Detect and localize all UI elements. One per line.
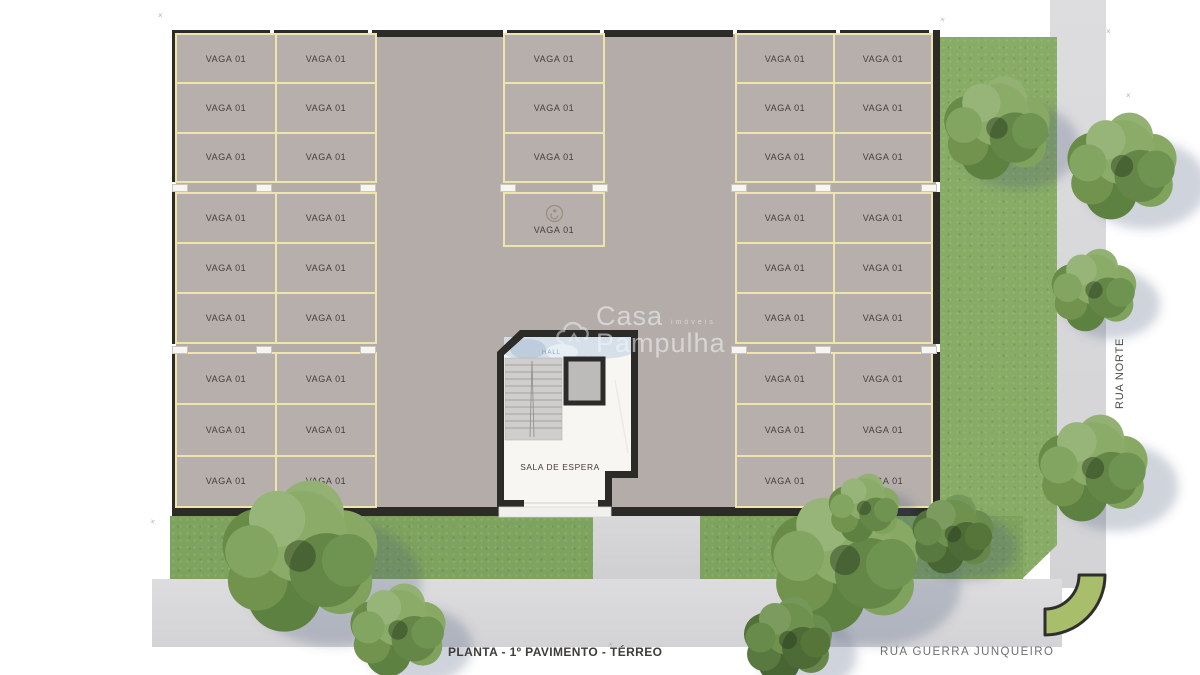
stall-label: VAGA 01 <box>863 213 904 223</box>
parking-stall: VAGA 01 <box>835 405 931 454</box>
wall-segment <box>933 30 940 182</box>
stall-label: VAGA 01 <box>206 313 247 323</box>
dimension-mark: × <box>1126 92 1131 100</box>
parking-block-right-bottom: VAGA 01VAGA 01VAGA 01VAGA 01VAGA 01VAGA … <box>735 352 933 508</box>
stall-label: VAGA 01 <box>206 374 247 384</box>
wall-segment <box>372 30 503 37</box>
driveway <box>593 516 700 579</box>
stall-label: VAGA 01 <box>534 54 575 64</box>
stall-label: VAGA 01 <box>206 54 247 64</box>
parking-stall: VAGA 01 <box>277 35 375 82</box>
parking-stall: VAGA 01 <box>737 244 833 292</box>
structural-column <box>592 184 608 192</box>
stall-label: VAGA 01 <box>534 152 575 162</box>
parking-block-left-bottom: VAGA 01VAGA 01VAGA 01VAGA 01VAGA 01VAGA … <box>175 352 377 508</box>
parking-block-left-top: VAGA 01VAGA 01VAGA 01VAGA 01VAGA 01VAGA … <box>175 33 377 183</box>
structural-column <box>921 184 937 192</box>
structural-column <box>815 184 831 192</box>
structural-column <box>256 184 272 192</box>
floor-plan-canvas: VAGA 01VAGA 01VAGA 01VAGA 01VAGA 01VAGA … <box>0 0 1200 675</box>
stall-label: VAGA 01 <box>306 103 347 113</box>
entrance-stoop <box>499 507 611 517</box>
stall-label: VAGA 01 <box>765 263 806 273</box>
structural-column <box>360 184 376 192</box>
structural-column <box>172 346 188 354</box>
dimension-mark: × <box>939 15 946 24</box>
stall-label: VAGA 01 <box>206 152 247 162</box>
parking-stall: VAGA 01 <box>737 354 833 403</box>
parking-stall: VAGA 01 <box>737 457 833 506</box>
parking-stall: VAGA 01 <box>737 405 833 454</box>
parking-stall: VAGA 01 <box>177 244 275 292</box>
stall-label: VAGA 01 <box>306 263 347 273</box>
grass-strip-right <box>940 37 1057 578</box>
structural-column <box>500 184 516 192</box>
stall-label: VAGA 01 <box>206 263 247 273</box>
structural-column <box>731 346 747 354</box>
stall-label: VAGA 01 <box>863 263 904 273</box>
stall-label: VAGA 01 <box>863 476 904 486</box>
structural-column <box>921 346 937 354</box>
stall-label: VAGA 01 <box>306 313 347 323</box>
parking-stall: VAGA 01 <box>835 457 931 506</box>
stall-label: VAGA 01 <box>765 54 806 64</box>
stall-label: VAGA 01 <box>306 152 347 162</box>
stall-label: VAGA 01 <box>534 103 575 113</box>
elevator-shaft <box>566 359 603 403</box>
parking-stall: VAGA 01 <box>177 294 275 342</box>
structural-column <box>360 346 376 354</box>
parking-stall: VAGA 01 <box>277 354 375 403</box>
sidewalk-right <box>1050 0 1106 588</box>
stall-label: VAGA 01 <box>863 374 904 384</box>
parking-stall: VAGA 01 <box>737 294 833 342</box>
parking-stall: VAGA 01 <box>177 35 275 82</box>
stall-label: VAGA 01 <box>765 152 806 162</box>
stall-label: VAGA 01 <box>306 213 347 223</box>
stall-label: VAGA 01 <box>863 152 904 162</box>
parking-block-left-middle: VAGA 01VAGA 01VAGA 01VAGA 01VAGA 01VAGA … <box>175 192 377 344</box>
stall-label: VAGA 01 <box>306 476 347 486</box>
street-label-bottom: RUA GUERRA JUNQUEIRO <box>880 646 1054 658</box>
parking-stall: VAGA 01 <box>277 244 375 292</box>
parking-stall: VAGA 01 <box>835 354 931 403</box>
stall-label: VAGA 01 <box>306 374 347 384</box>
parking-stall: VAGA 01 <box>177 194 275 242</box>
accessible-parking-icon <box>545 204 564 223</box>
parking-stall: VAGA 01 <box>177 405 275 454</box>
parking-stall: VAGA 01 <box>737 194 833 242</box>
parking-block-right-middle: VAGA 01VAGA 01VAGA 01VAGA 01VAGA 01VAGA … <box>735 192 933 344</box>
parking-block-center-top: VAGA 01VAGA 01VAGA 01 <box>503 33 605 183</box>
structural-column <box>731 184 747 192</box>
dimension-mark: × <box>1106 28 1111 36</box>
wall-segment <box>604 30 733 37</box>
stair-core: HALL SALA DE ESPERA <box>490 325 642 519</box>
stall-label: VAGA 01 <box>863 425 904 435</box>
parking-stall: VAGA 01 <box>177 354 275 403</box>
plan-title: PLANTA - 1º PAVIMENTO - TÉRREO <box>448 645 662 659</box>
structural-column <box>815 346 831 354</box>
stall-label: VAGA 01 <box>863 103 904 113</box>
wall-segment <box>172 507 499 516</box>
parking-stall: VAGA 01 <box>835 35 931 82</box>
stall-label: VAGA 01 <box>765 374 806 384</box>
parking-stall: VAGA 01 <box>277 294 375 342</box>
waiting-room-label: SALA DE ESPERA <box>520 462 600 472</box>
wall-segment <box>611 507 940 516</box>
wall-segment <box>933 192 940 344</box>
parking-stall: VAGA 01 <box>277 134 375 181</box>
stall-label: VAGA 01 <box>206 213 247 223</box>
dimension-mark: × <box>158 12 163 20</box>
stall-label: VAGA 01 <box>206 103 247 113</box>
parking-stall-accessible: VAGA 01 <box>505 194 603 245</box>
dimension-mark: × <box>149 517 156 526</box>
stall-label: VAGA 01 <box>863 313 904 323</box>
parking-block-right-top: VAGA 01VAGA 01VAGA 01VAGA 01VAGA 01VAGA … <box>735 33 933 183</box>
parking-stall: VAGA 01 <box>177 457 275 506</box>
stall-label: VAGA 01 <box>765 476 806 486</box>
wall-segment <box>933 352 940 516</box>
parking-stall: VAGA 01 <box>277 84 375 131</box>
parking-stall: VAGA 01 <box>505 84 603 131</box>
parking-stall: VAGA 01 <box>835 84 931 131</box>
parking-stall: VAGA 01 <box>835 194 931 242</box>
parking-stall: VAGA 01 <box>177 134 275 181</box>
parking-stall: VAGA 01 <box>277 194 375 242</box>
parking-stall: VAGA 01 <box>505 134 603 181</box>
parking-stall: VAGA 01 <box>737 35 833 82</box>
parking-stall: VAGA 01 <box>277 405 375 454</box>
hall-label: HALL <box>542 350 561 356</box>
parking-stall: VAGA 01 <box>505 35 603 82</box>
parking-stall: VAGA 01 <box>835 244 931 292</box>
structural-column <box>172 184 188 192</box>
stall-label: VAGA 01 <box>306 425 347 435</box>
parking-stall: VAGA 01 <box>277 457 375 506</box>
parking-stall: VAGA 01 <box>835 294 931 342</box>
parking-block-center-accessible: VAGA 01 <box>503 192 605 247</box>
parking-stall: VAGA 01 <box>737 134 833 181</box>
stall-label: VAGA 01 <box>765 425 806 435</box>
street-label-right: RUA NORTE <box>1114 339 1126 409</box>
structural-column <box>256 346 272 354</box>
parking-stall: VAGA 01 <box>177 84 275 131</box>
stall-label: VAGA 01 <box>765 313 806 323</box>
parking-stall: VAGA 01 <box>835 134 931 181</box>
stall-label: VAGA 01 <box>765 213 806 223</box>
stall-label: VAGA 01 <box>863 54 904 64</box>
stall-label: VAGA 01 <box>765 103 806 113</box>
sidewalk-bottom <box>152 579 1062 647</box>
stall-label: VAGA 01 <box>206 425 247 435</box>
parking-stall: VAGA 01 <box>737 84 833 131</box>
stall-label: VAGA 01 <box>306 54 347 64</box>
stall-label: VAGA 01 <box>534 225 575 235</box>
stall-label: VAGA 01 <box>206 476 247 486</box>
